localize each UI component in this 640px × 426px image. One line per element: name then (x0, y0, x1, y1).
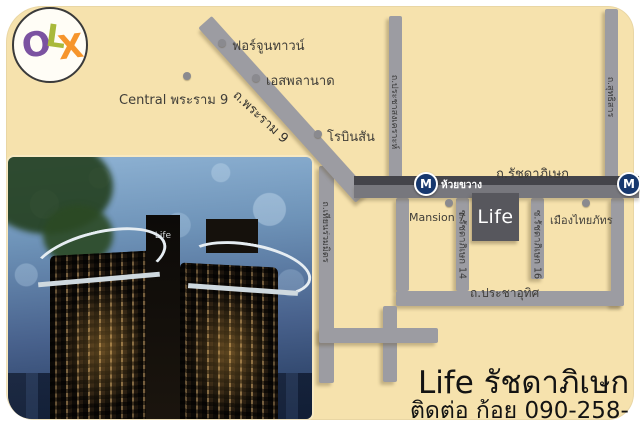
olx-logo: O L X (12, 7, 88, 83)
listing-image: ฟอร์จูนทาวน์ เอสพลานาด Central พระราม 9 … (0, 0, 640, 426)
life-building-label: Life (477, 206, 513, 228)
road-label-pracha-uthit: ถ.ประชาอุทิศ (470, 284, 539, 303)
road-label-pracha-songkhro: ถ.ประชาสงเคราะห์ (388, 52, 402, 172)
road-connector-lower (383, 306, 397, 382)
mrt-icon-huai-khwang: M (414, 172, 438, 196)
road-label-sutthisan: ถ.สุทธิสาร (604, 37, 618, 157)
road-label-thiam-ruam-mit: ถ.เทียนร่วมมิตร (319, 172, 333, 292)
landmark-dot-mansion7 (445, 199, 453, 207)
road-branch-left (319, 328, 438, 343)
mrt-station-label: ห้วยขวาง (441, 178, 482, 193)
landmark-label-central-rama9: Central พระราม 9 (119, 89, 228, 110)
landmark-dot-robinson (314, 130, 322, 138)
mrt-icon-right: M (617, 172, 640, 196)
life-building-box: Life (472, 193, 519, 241)
landmark-dot-central-rama9 (183, 72, 191, 80)
contact-phone: ติดต่อ ก้อย 090-258-9270 (410, 393, 634, 426)
condo-photo: Life (8, 157, 312, 419)
landmark-dot-esplanade (252, 74, 260, 82)
road-label-soi-14: ซ.รัชดาภิเษก 14 (455, 185, 470, 305)
landmark-label-robinson: โรบินสัน (327, 126, 375, 147)
landmark-dot-fortune-town (218, 39, 226, 47)
landmark-label-muang-thai-phatra: เมืองไทยภัทร (550, 211, 613, 229)
road-label-ratchadaphisek: ถ.รัชดาภิเษก (496, 163, 569, 184)
landmark-dot-muang-thai-phatra (582, 199, 590, 207)
landmark-label-fortune-town: ฟอร์จูนทาวน์ (232, 35, 305, 56)
road-connector-upper (396, 198, 409, 291)
landmark-label-esplanade: เอสพลานาด (266, 70, 335, 91)
olx-letter-x: X (56, 26, 86, 68)
